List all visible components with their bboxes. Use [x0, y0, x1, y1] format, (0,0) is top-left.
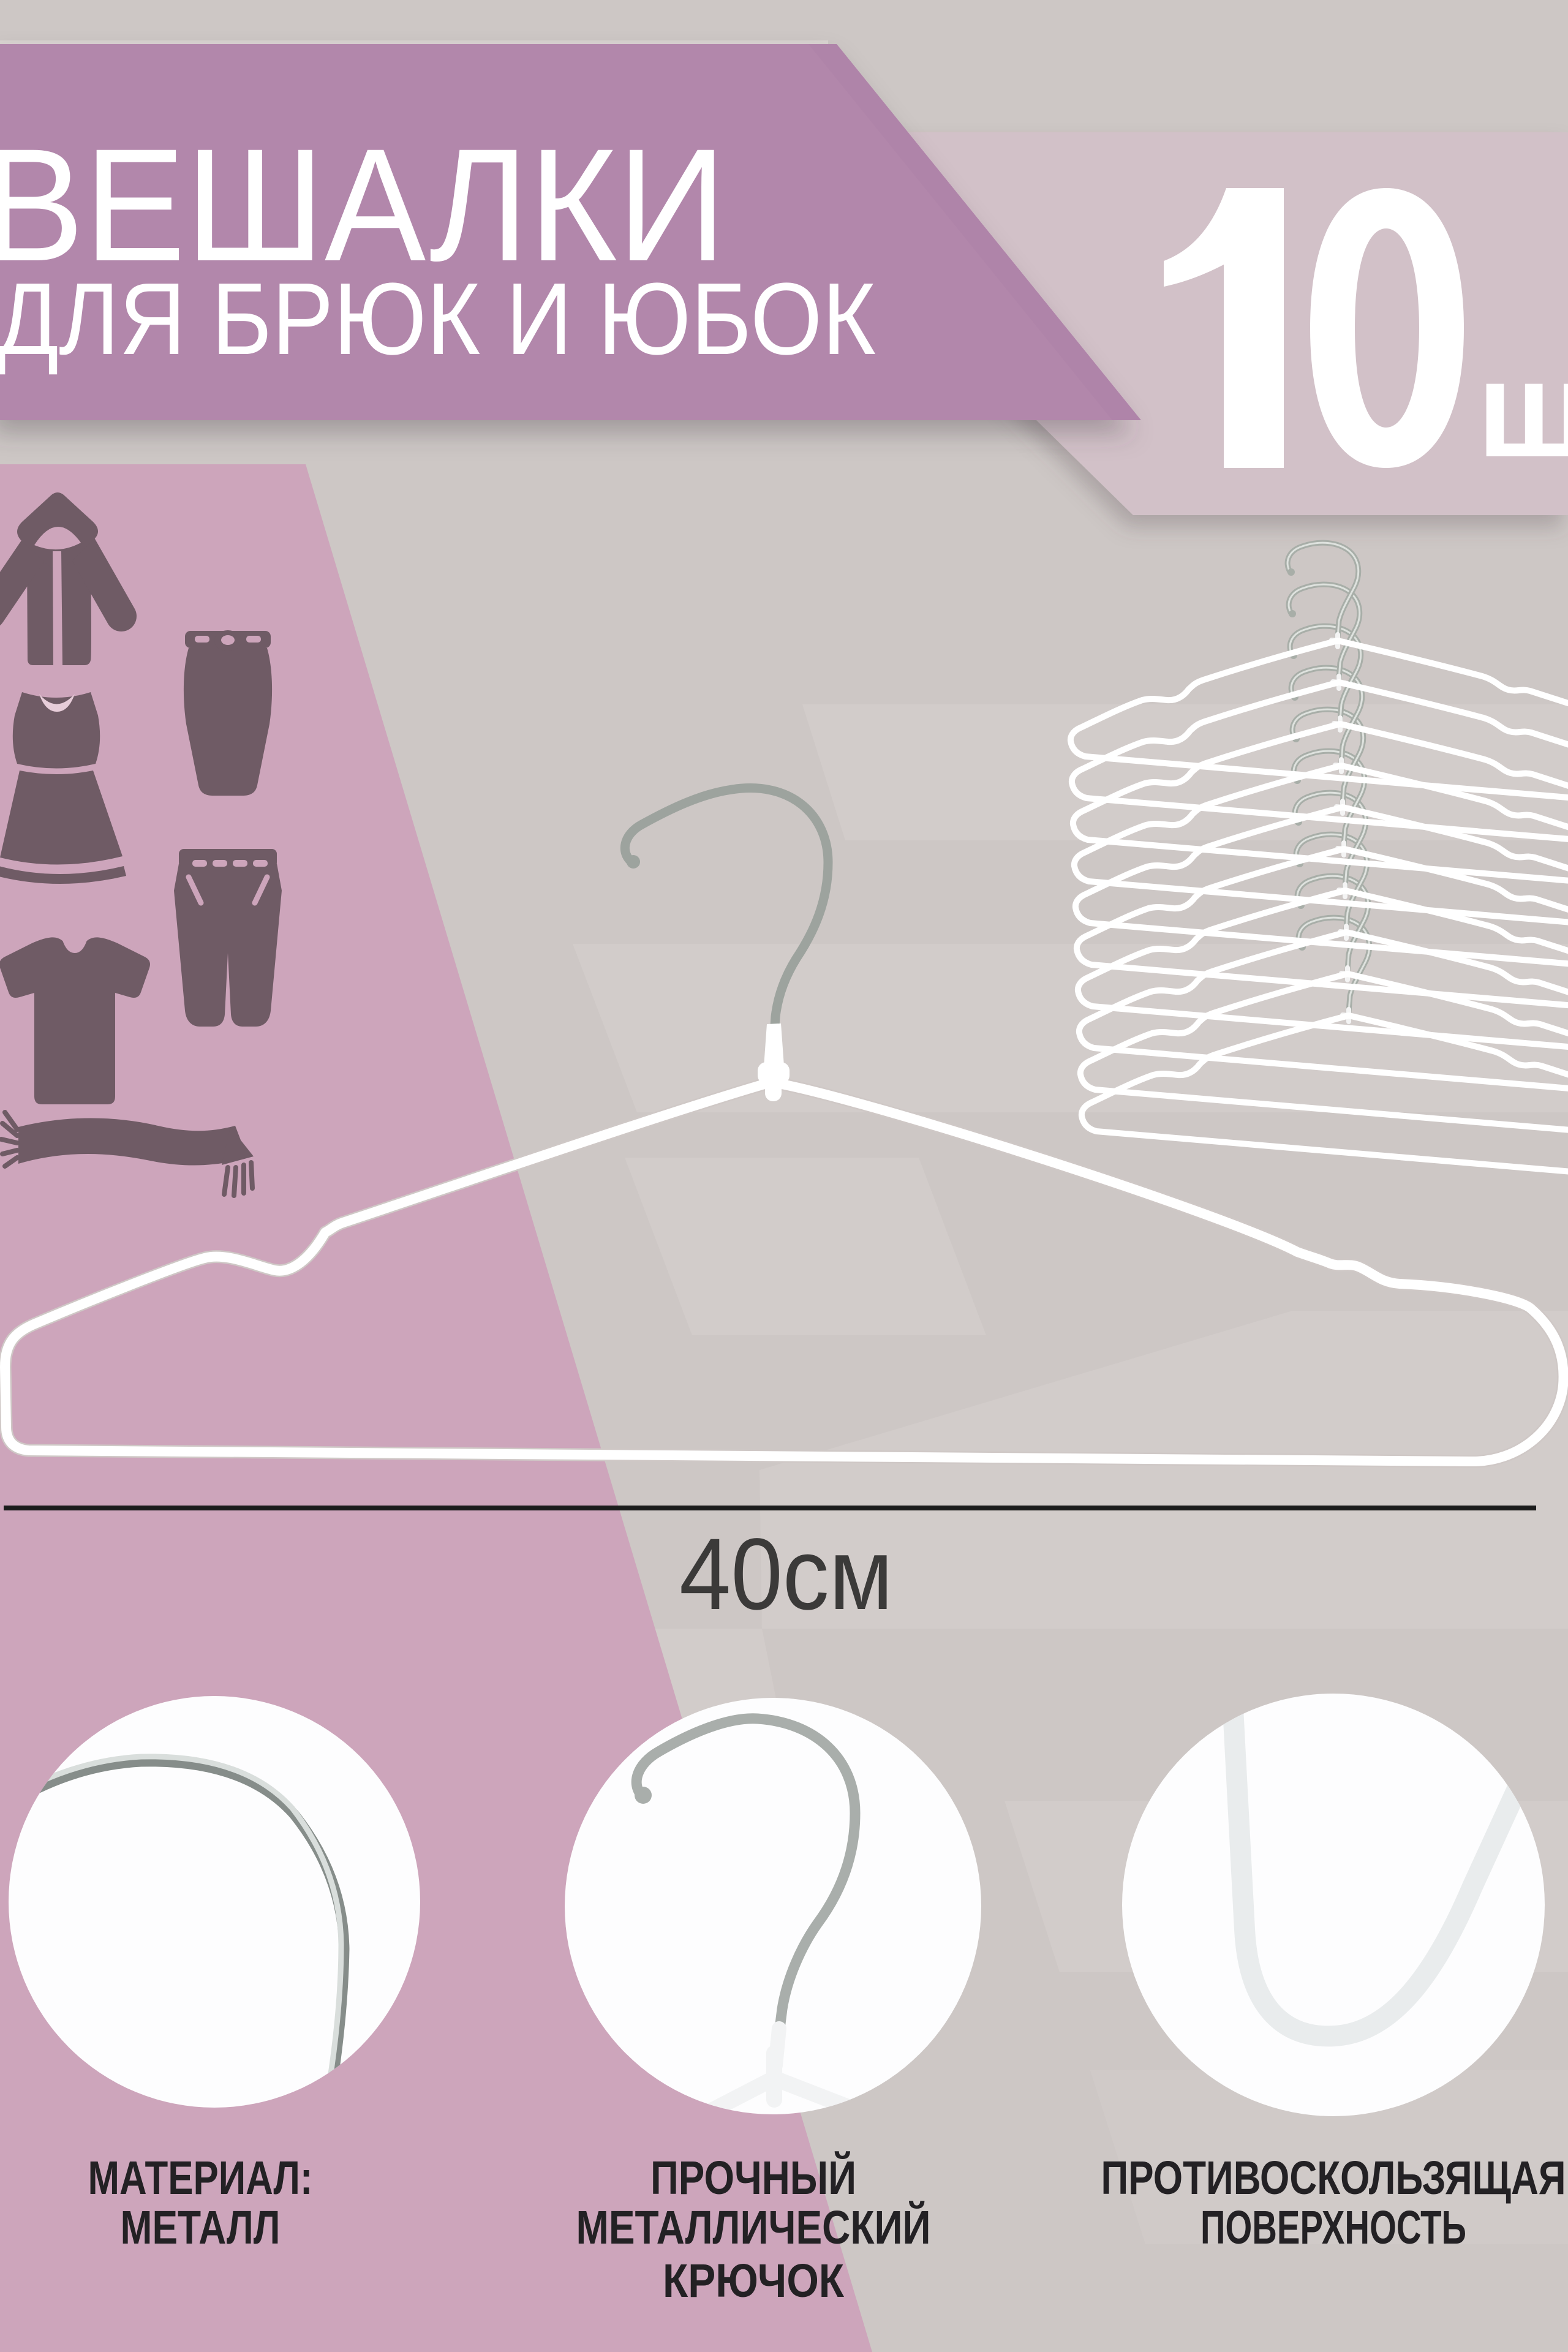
svg-text:КРЮЧОК: КРЮЧОК — [663, 2255, 845, 2307]
svg-text:шт: шт — [1477, 333, 1568, 486]
svg-text:40см: 40см — [679, 1518, 893, 1631]
svg-text:ПОВЕРХНОСТЬ: ПОВЕРХНОСТЬ — [1200, 2201, 1466, 2254]
svg-text:МАТЕРИАЛ:: МАТЕРИАЛ: — [88, 2152, 313, 2204]
svg-text:ПРОЧНЫЙ: ПРОЧНЫЙ — [650, 2150, 856, 2204]
svg-text:МЕТАЛЛ: МЕТАЛЛ — [121, 2201, 281, 2254]
svg-text:МЕТАЛЛИЧЕСКИЙ: МЕТАЛЛИЧЕСКИЙ — [576, 2200, 931, 2254]
svg-text:ПРОТИВОСКОЛЬЗЯЩАЯ: ПРОТИВОСКОЛЬЗЯЩАЯ — [1101, 2152, 1566, 2204]
svg-text:ДЛЯ БРЮК И ЮБОК: ДЛЯ БРЮК И ЮБОК — [0, 262, 876, 376]
